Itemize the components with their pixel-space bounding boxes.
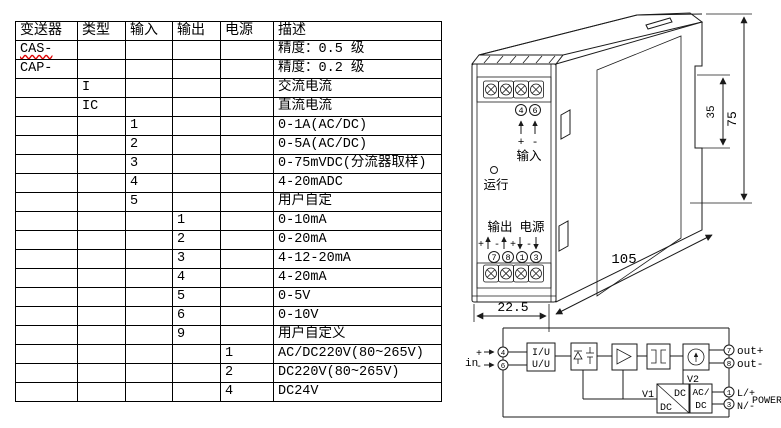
technical-drawing: 4 6 + - 输入 运行 输出 电源 + - + -: [455, 0, 781, 428]
table-cell: 4-12-20mA: [274, 250, 442, 269]
table-row: 44-20mA: [16, 269, 442, 288]
table-cell: [78, 269, 126, 288]
table-cell: 4: [126, 174, 173, 193]
power-supply-label: POWER: [752, 396, 781, 407]
table-cell: [173, 345, 221, 364]
table-row: 10-10mA: [16, 212, 442, 231]
table-cell: [221, 117, 274, 136]
out-minus-label: out-: [737, 359, 763, 371]
table-cell: [78, 231, 126, 250]
table-cell: [173, 98, 221, 117]
table-cell: [221, 326, 274, 345]
table-row: 44-20mADC: [16, 174, 442, 193]
table-cell: 0-10V: [274, 307, 442, 326]
table-cell: [221, 307, 274, 326]
table-row: 2DC220V(80~265V): [16, 364, 442, 383]
table-row: 10-1A(AC/DC): [16, 117, 442, 136]
table-cell: 1: [126, 117, 173, 136]
table-cell: [16, 174, 78, 193]
table-cell: 4-20mA: [274, 269, 442, 288]
input-plus-sign: +: [518, 137, 525, 149]
table-cell: [16, 364, 78, 383]
table-cell: 精度：0.2 级: [274, 60, 442, 79]
table-cell: [78, 345, 126, 364]
table-cell: [16, 383, 78, 402]
table-cell: CAP-: [16, 60, 78, 79]
input-label: 输入: [516, 148, 542, 164]
table-cell: 2: [221, 364, 274, 383]
sign: -: [526, 240, 532, 251]
table-cell: [78, 383, 126, 402]
table-cell: [16, 136, 78, 155]
table-header-row: 变送器类型输入输出电源描述: [16, 22, 442, 41]
table-header-cell: 类型: [78, 22, 126, 41]
block-label: I/U: [532, 347, 550, 359]
table-cell: [16, 212, 78, 231]
table-row: 60-10V: [16, 307, 442, 326]
table-cell: [78, 155, 126, 174]
table-cell: [126, 98, 173, 117]
table-cell: 5: [126, 193, 173, 212]
table-cell: [126, 383, 173, 402]
table-cell: [126, 364, 173, 383]
sign: +: [478, 240, 484, 251]
block-label: AC/: [692, 387, 709, 398]
table-cell: DC24V: [274, 383, 442, 402]
table-cell: [173, 79, 221, 98]
power-label: 电源: [519, 220, 545, 235]
table-row: CAS-精度：0.5 级: [16, 41, 442, 60]
terminal-number: 7: [491, 253, 496, 263]
table-cell: [78, 250, 126, 269]
table-row: 20-5A(AC/DC): [16, 136, 442, 155]
table-row: 50-5V: [16, 288, 442, 307]
table-cell: [221, 136, 274, 155]
table-cell: [78, 326, 126, 345]
amplifier-block: [612, 344, 637, 370]
table-cell: [173, 41, 221, 60]
table-cell: [173, 174, 221, 193]
table-cell: 2: [173, 231, 221, 250]
table-cell: 4-20mADC: [274, 174, 442, 193]
in-plus: +: [476, 349, 482, 360]
table-cell: [16, 79, 78, 98]
table-cell: [221, 193, 274, 212]
table-cell: [173, 136, 221, 155]
table-cell: [126, 212, 173, 231]
run-label: 运行: [483, 178, 508, 193]
table-cell: [126, 41, 173, 60]
table-cell: [126, 231, 173, 250]
table-cell: [221, 155, 274, 174]
table-cell: [78, 212, 126, 231]
table-cell: [16, 117, 78, 136]
table-cell: [221, 60, 274, 79]
table-header-cell: 输出: [173, 22, 221, 41]
table-cell: [16, 193, 78, 212]
table-cell: [78, 307, 126, 326]
table-cell: 1: [173, 212, 221, 231]
table-cell: [221, 269, 274, 288]
table-cell: 5: [173, 288, 221, 307]
table-row: 1AC/DC220V(80~265V): [16, 345, 442, 364]
table-cell: [126, 269, 173, 288]
table-header-cell: 变送器: [16, 22, 78, 41]
table-cell: [16, 155, 78, 174]
table-cell: AC/DC220V(80~265V): [274, 345, 442, 364]
table-cell: 0-5A(AC/DC): [274, 136, 442, 155]
table-cell: [126, 79, 173, 98]
table-cell: CAS-: [16, 41, 78, 60]
dim-width-label: 22.5: [497, 300, 528, 315]
dim-depth-label: 105: [611, 252, 636, 268]
table-cell: [78, 60, 126, 79]
table-header-cell: 输入: [126, 22, 173, 41]
out-plus-label: out+: [737, 346, 763, 358]
table-cell: [78, 288, 126, 307]
terminal-number: 6: [532, 106, 537, 116]
dim-rail-label: 35: [706, 105, 718, 118]
terminal-number: 4: [501, 350, 506, 358]
table-cell: [173, 60, 221, 79]
table-cell: 9: [173, 326, 221, 345]
block-label: U/U: [532, 359, 550, 371]
table-cell: [221, 231, 274, 250]
table-cell: [173, 364, 221, 383]
circuit-block-diagram: in + - 4 6 I/U U/U: [465, 328, 781, 417]
table-cell: [221, 212, 274, 231]
terminal-number: 6: [501, 363, 506, 371]
terminal-number: 8: [727, 361, 732, 369]
table-cell: [16, 326, 78, 345]
terminal-number: 1: [727, 390, 732, 398]
in-minus: -: [476, 362, 482, 373]
table-cell: 4: [173, 269, 221, 288]
table-cell: I: [78, 79, 126, 98]
terminal-number: 8: [505, 253, 510, 263]
table-cell: [78, 117, 126, 136]
table-cell: 0-1A(AC/DC): [274, 117, 442, 136]
table-cell: [78, 136, 126, 155]
table-cell: 0-5V: [274, 288, 442, 307]
table-row: 4DC24V: [16, 383, 442, 402]
table-row: I交流电流: [16, 79, 442, 98]
table-cell: [16, 250, 78, 269]
table-cell: [126, 288, 173, 307]
table-cell: 0-10mA: [274, 212, 442, 231]
table-cell: [78, 193, 126, 212]
terminal-number: 7: [727, 348, 732, 356]
table-cell: [126, 250, 173, 269]
table-cell: 3: [126, 155, 173, 174]
table-header-cell: 电源: [221, 22, 274, 41]
side-slot: [561, 110, 570, 139]
table-cell: 0-20mA: [274, 231, 442, 250]
sign: +: [510, 240, 516, 251]
table-cell: [78, 364, 126, 383]
table-cell: [126, 60, 173, 79]
table-cell: [16, 269, 78, 288]
table-cell: [173, 193, 221, 212]
table-cell: 0-75mVDC(分流器取样): [274, 155, 442, 174]
block-label: DC: [660, 403, 672, 414]
table-header-cell: 描述: [274, 22, 442, 41]
table-cell: 精度：0.5 级: [274, 41, 442, 60]
table-cell: 直流电流: [274, 98, 442, 117]
table-cell: 3: [173, 250, 221, 269]
table-cell: [78, 174, 126, 193]
table-row: 5用户自定: [16, 193, 442, 212]
dim-height-label: 75: [725, 111, 740, 127]
table-cell: [16, 231, 78, 250]
table-cell: 6: [173, 307, 221, 326]
table-cell: 2: [126, 136, 173, 155]
table-cell: 1: [221, 345, 274, 364]
table-cell: IC: [78, 98, 126, 117]
isolation-block: [647, 344, 670, 369]
table-cell: [221, 250, 274, 269]
rectifier-block: [571, 343, 597, 370]
table-row: IC直流电流: [16, 98, 442, 117]
terminal-number: 4: [518, 106, 523, 116]
side-slot: [559, 221, 568, 251]
block-label: DC: [695, 400, 707, 411]
table-cell: [16, 98, 78, 117]
block-label: DC: [674, 389, 686, 400]
table-cell: [221, 288, 274, 307]
table-cell: 用户自定义: [274, 326, 442, 345]
sign: -: [494, 240, 500, 251]
terminal-number: 3: [727, 402, 732, 410]
input-minus-sign: -: [532, 137, 539, 149]
spec-table: 变送器类型输入输出电源描述 CAS-精度：0.5 级CAP-精度：0.2 级I交…: [15, 21, 442, 402]
table-row: 34-12-20mA: [16, 250, 442, 269]
table-cell: [173, 155, 221, 174]
page: 变送器类型输入输出电源描述 CAS-精度：0.5 级CAP-精度：0.2 级I交…: [0, 0, 781, 428]
table-cell: 4: [221, 383, 274, 402]
table-row: CAP-精度：0.2 级: [16, 60, 442, 79]
table-cell: [173, 383, 221, 402]
table-cell: 交流电流: [274, 79, 442, 98]
table-cell: [173, 117, 221, 136]
table-cell: DC220V(80~265V): [274, 364, 442, 383]
terminal-number: 3: [533, 253, 538, 263]
terminal-number: 1: [519, 253, 524, 263]
table-cell: [126, 326, 173, 345]
table-cell: [16, 307, 78, 326]
table-cell: [16, 288, 78, 307]
table-cell: [221, 79, 274, 98]
table-row: 20-20mA: [16, 231, 442, 250]
table-cell: 用户自定: [274, 193, 442, 212]
table-cell: [221, 41, 274, 60]
table-row: 30-75mVDC(分流器取样): [16, 155, 442, 174]
table-cell: [16, 345, 78, 364]
table-cell: [78, 41, 126, 60]
table-cell: [221, 174, 274, 193]
table-row: 9用户自定义: [16, 326, 442, 345]
table-cell: [221, 98, 274, 117]
table-cell: [126, 345, 173, 364]
output-label: 输出: [487, 219, 512, 235]
table-cell: [126, 307, 173, 326]
